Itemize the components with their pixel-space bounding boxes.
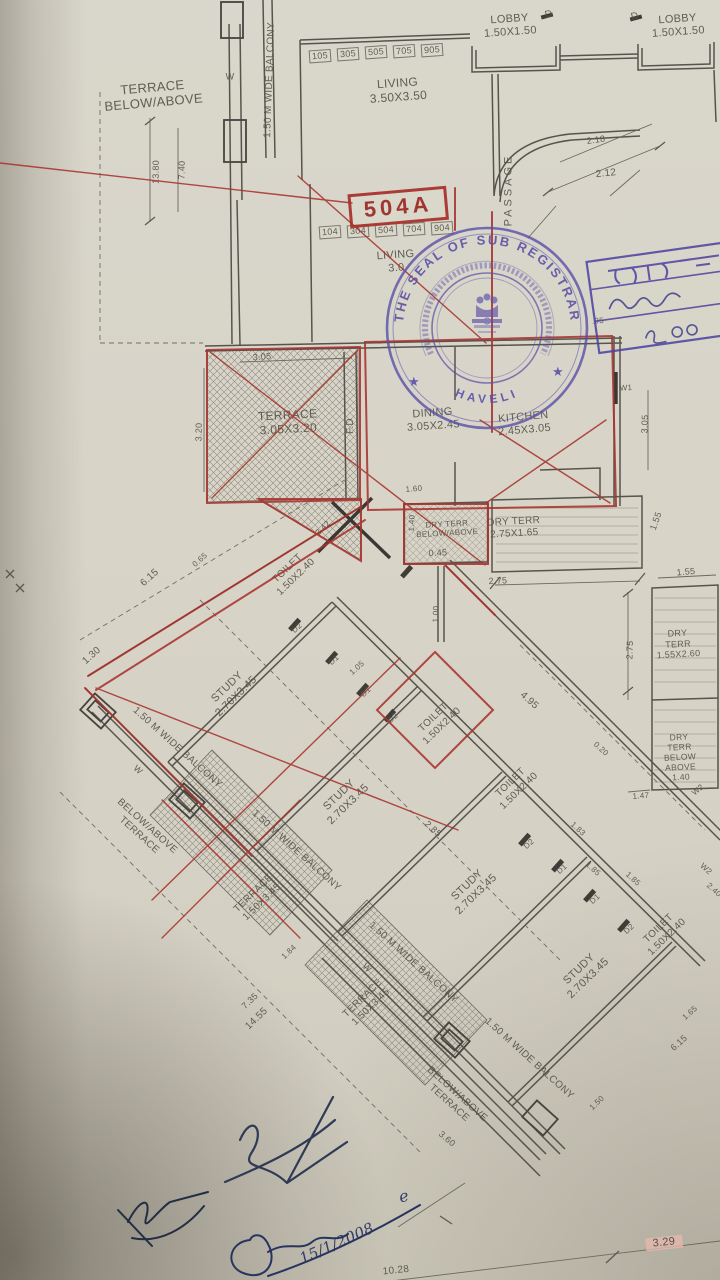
dim: 1.40 xyxy=(407,514,417,531)
dim: 1.05 xyxy=(348,659,367,677)
handwriting: e xyxy=(397,1187,411,1208)
room-label: STUDY 2.70X3.45 xyxy=(444,862,500,917)
unit-number: 305 xyxy=(337,47,360,61)
dim: 4.95 xyxy=(517,690,540,713)
room-label: TERRACE 1.50X3.45 xyxy=(341,977,393,1029)
room-label: LOBBY 1.50X1.50 xyxy=(651,11,706,41)
unit-number: 904 xyxy=(431,221,454,235)
dim: 1.84 xyxy=(280,943,299,961)
room-label: TOILET 1.50X2.40 xyxy=(412,697,463,748)
door-label: D2 xyxy=(386,711,400,725)
dim: 6.15 xyxy=(138,567,161,590)
dim: 2.85 xyxy=(422,819,443,839)
window-label: W1 xyxy=(619,383,632,393)
room-label: DINING 3.05X2.45 xyxy=(406,405,461,435)
window-label: W xyxy=(360,961,374,975)
room-label: STUDY 2.70X3.45 xyxy=(316,772,372,827)
door-label: D1 xyxy=(555,862,569,876)
plan-labels-layer: TERRACE BELOW/ABOVE1.50 M WIDE BALCONY13… xyxy=(0,0,720,1280)
room-label: STUDY 2.70X3.45 xyxy=(204,664,260,719)
room-label: TERRACE 3.05X3.20 xyxy=(258,406,319,437)
dim: 1.50 xyxy=(588,1094,607,1112)
room-label: DRY TERR 2.75X1.65 xyxy=(487,515,541,541)
dim: 1.65 xyxy=(681,1004,700,1022)
dim: 2.75 xyxy=(488,575,507,587)
balcony-label: 1.50 M WIDE BALCONY xyxy=(482,1016,576,1102)
dim: 3.20 xyxy=(194,423,205,442)
dim: 3.05 xyxy=(252,351,271,363)
dim: 3.60 xyxy=(436,1129,457,1149)
door-label: D2 xyxy=(290,621,304,635)
unit-number: 505 xyxy=(365,45,388,59)
floor-plan-photo-page: TERRACE BELOW/ABOVE1.50 M WIDE BALCONY13… xyxy=(0,0,720,1280)
unit-number: 704 xyxy=(403,222,426,236)
dim: 0.45 xyxy=(428,547,447,559)
terrace-below-above-label: TERRACE BELOW/ABOVE xyxy=(103,75,204,114)
room-label: TOILET 1.50X2.40 xyxy=(266,548,317,599)
window-label: W xyxy=(226,72,235,83)
room-label: LIVING 3.50X3.50 xyxy=(368,74,427,106)
unit-number: 905 xyxy=(421,43,444,57)
dim: 1.30 xyxy=(80,645,103,668)
dim: 1.83 xyxy=(569,820,588,838)
dim: 2.42 xyxy=(314,519,333,537)
room-label: STUDY 2.70X3.45 xyxy=(556,946,612,1001)
dim: 13.80 xyxy=(150,160,161,184)
window-label: W xyxy=(131,763,145,777)
handwriting-date: 15/1/2008 xyxy=(297,1220,377,1269)
room-label: DRY TERR 1.55X2.60 xyxy=(655,627,700,661)
terrace-label: BELOW/ABOVE TERRACE xyxy=(107,797,180,866)
dim: 2.12 xyxy=(595,167,617,181)
room-label: TOILET 1.50X2.40 xyxy=(637,908,688,959)
dim: 3.05 xyxy=(639,414,650,433)
dim: .95 xyxy=(592,316,605,326)
window-label: W2 xyxy=(698,861,714,876)
dim: 0.65 xyxy=(191,551,210,569)
dim: 7.35 xyxy=(240,991,261,1012)
dim: 1.55 xyxy=(648,510,664,531)
door-label: D1 xyxy=(588,892,602,906)
dim: 3.29 xyxy=(645,1235,683,1252)
door-label: D2 xyxy=(522,837,536,851)
dim: 10.28 xyxy=(382,1264,410,1279)
fd-label: F.D xyxy=(345,418,357,434)
dim: 2.18 xyxy=(586,133,606,146)
door-label: D1 xyxy=(327,653,341,667)
room-label: TERRACE 1.50X3.45 xyxy=(232,872,284,924)
dim: 7.40 xyxy=(177,161,188,180)
balcony-label: 1.50 M WIDE BALCONY xyxy=(130,705,224,791)
room-label: DRY TERR BELOW/ABOVE xyxy=(416,518,479,540)
dim: 2.40 xyxy=(705,881,720,899)
dim: 0.20 xyxy=(592,740,611,758)
dim: 1.47 xyxy=(632,791,649,802)
room-label: KITCHEN 2.45X3.05 xyxy=(497,409,552,439)
door-label: D2 xyxy=(622,922,636,936)
room-label: DRY TERR BELOW ABOVE 1.40 xyxy=(659,731,702,783)
dim: 1.00 xyxy=(431,605,441,622)
dim: 2.75 xyxy=(624,640,635,659)
dim: 1.55 xyxy=(676,566,696,578)
balcony-label: 1.50 M WIDE BALCONY xyxy=(262,22,278,138)
door-label: D1 xyxy=(359,685,373,699)
dim: 1.60 xyxy=(405,484,422,495)
door-label: D xyxy=(544,8,554,21)
room-label: LIVING 3.0 xyxy=(376,248,416,277)
dim: 1.85 xyxy=(584,860,603,878)
room-label: LOBBY 1.50X1.50 xyxy=(483,11,538,41)
passage-label: PASSAGE xyxy=(503,154,516,227)
window-label: W2 xyxy=(690,782,706,797)
unit-number: 105 xyxy=(309,49,332,63)
door-label: D xyxy=(630,10,640,23)
unit-number: 104 xyxy=(319,225,342,239)
unit-number: 705 xyxy=(393,44,416,58)
dim: 1.85 xyxy=(624,870,643,888)
dim: 6.15 xyxy=(668,1033,689,1053)
terrace-label: BELOW/ABOVE TERRACE xyxy=(417,1065,490,1134)
room-label: TOILET 1.50X2.40 xyxy=(489,762,540,813)
